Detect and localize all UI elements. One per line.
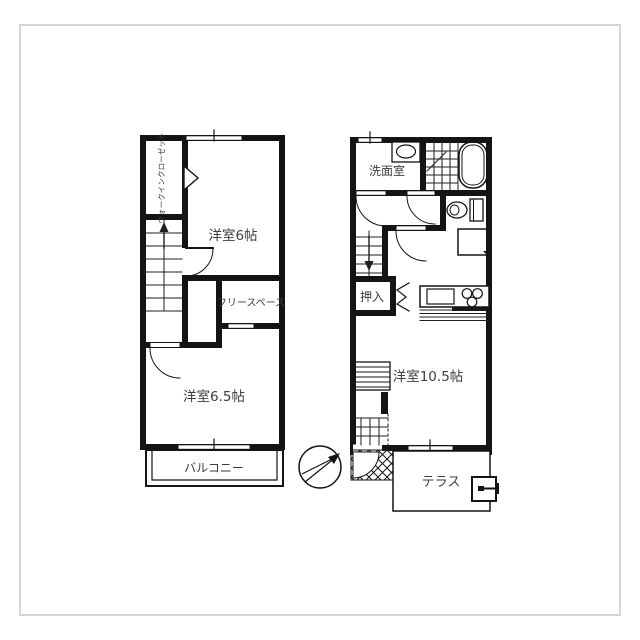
door-room65 bbox=[150, 343, 180, 379]
door-room6 bbox=[186, 248, 213, 276]
bifold-door-icon bbox=[397, 283, 409, 311]
room-6-label: 洋室6帖 bbox=[208, 227, 257, 244]
terrace-label: テラス bbox=[422, 475, 461, 490]
stairs-down bbox=[356, 231, 382, 276]
north-arrow-icon bbox=[299, 446, 341, 488]
entrance-tile bbox=[352, 414, 388, 445]
kitchen-counter bbox=[420, 286, 489, 321]
outdoor-faucet-icon bbox=[472, 477, 498, 501]
room-105-label: 洋室10.5帖 bbox=[393, 368, 464, 385]
terrace: テラス bbox=[393, 451, 498, 511]
room-65-label: 洋室6.5帖 bbox=[183, 388, 245, 405]
stairs-up bbox=[146, 220, 182, 311]
storage-louver bbox=[352, 362, 390, 390]
bath-door-line bbox=[427, 152, 446, 171]
floor-plan-svg: ウォークインクローゼット 洋室6帖 フリースペース 洋室6.5帖 bbox=[0, 0, 640, 640]
oshiire-label: 押入 bbox=[360, 290, 384, 304]
bathtub-icon bbox=[459, 142, 487, 188]
plan-2f: ウォークインクローゼット 洋室6帖 フリースペース 洋室6.5帖 bbox=[140, 130, 285, 486]
main-room-door bbox=[396, 226, 426, 261]
washroom-label: 洗面室 bbox=[369, 163, 405, 178]
balcony-label: バルコニー bbox=[184, 461, 244, 475]
balcony: バルコニー bbox=[146, 450, 283, 486]
toilet-door bbox=[407, 191, 435, 224]
plan-1f: 洗面室 bbox=[350, 132, 498, 511]
walk-in-closet-label: ウォークインクローゼット bbox=[156, 132, 166, 223]
washroom: 洗面室 bbox=[369, 142, 420, 178]
refrigerator-box bbox=[458, 229, 489, 257]
toilet-icon bbox=[447, 199, 483, 221]
image-frame bbox=[20, 25, 620, 615]
free-space-label: フリースペース bbox=[217, 298, 285, 309]
bathroom bbox=[426, 142, 487, 190]
washroom-door bbox=[356, 191, 386, 226]
closet-door-triangle-icon bbox=[184, 166, 198, 190]
floor-plan-image: ウォークインクローゼット 洋室6帖 フリースペース 洋室6.5帖 bbox=[0, 0, 640, 640]
down-arrow-icon bbox=[365, 261, 374, 271]
